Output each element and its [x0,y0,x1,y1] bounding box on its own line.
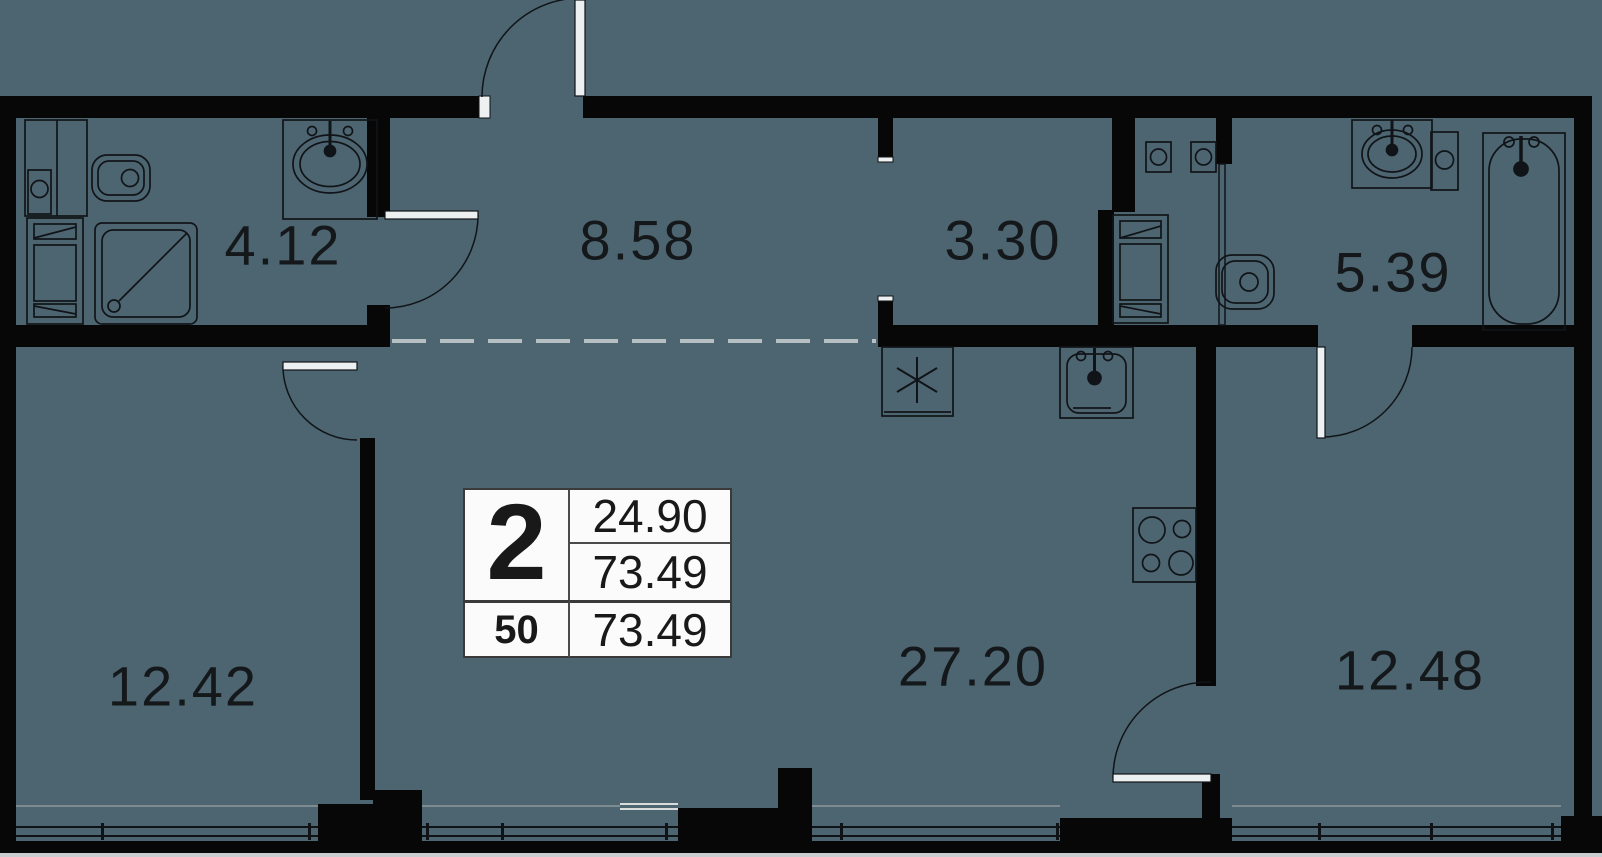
fridge-icon [882,347,953,416]
shower-icon [95,223,197,324]
floor-plan-drawing [0,0,1602,857]
rooms-count: 2 [465,490,570,600]
washer-icon [1146,142,1171,172]
room-label-bedroom-left: 12.42 [108,654,258,719]
kitchen-sink-icon [1060,347,1133,418]
room-label-hallway: 8.58 [580,208,697,273]
dryer-icon [1191,142,1216,172]
sink-icon [283,120,377,219]
bathroom-small-door [385,211,478,308]
shaft-icon [1431,132,1458,190]
toilet-icon [92,155,150,201]
thin-wall [1219,164,1225,325]
bedroom-left-door [283,362,357,440]
room-label-kitchen-living: 27.20 [898,634,1048,699]
facade-edge [0,853,1602,857]
total-area-repeat: 73.49 [570,600,730,657]
bathtub-icon [1483,133,1565,330]
floor-plan: 4.12 8.58 3.30 5.39 12.42 27.20 12.48 2 … [0,0,1602,857]
room-label-wardrobe: 3.30 [945,208,1062,273]
living-area-value: 24.90 [570,490,730,544]
washing-machine-icon [28,170,51,214]
room-label-bathroom-large: 5.39 [1335,240,1452,305]
appliance-column-icon [1113,215,1168,323]
bathroom-large-door [1317,347,1412,438]
cabinet-icon [25,120,87,216]
unit-number: 50 [465,600,570,657]
sink-icon [1352,120,1432,188]
entrance-door [482,0,585,97]
unit-info-card: 2 24.90 73.49 50 73.49 [463,488,732,658]
bedroom-right-door [1113,682,1211,782]
stove-icon [1133,508,1196,582]
room-label-bathroom-small: 4.12 [225,213,342,278]
room-label-bedroom-right: 12.48 [1335,638,1485,703]
walls [0,96,1602,857]
total-area-value: 73.49 [570,544,730,600]
appliance-column-icon [27,218,83,324]
balcony-door-threshold [620,804,678,809]
